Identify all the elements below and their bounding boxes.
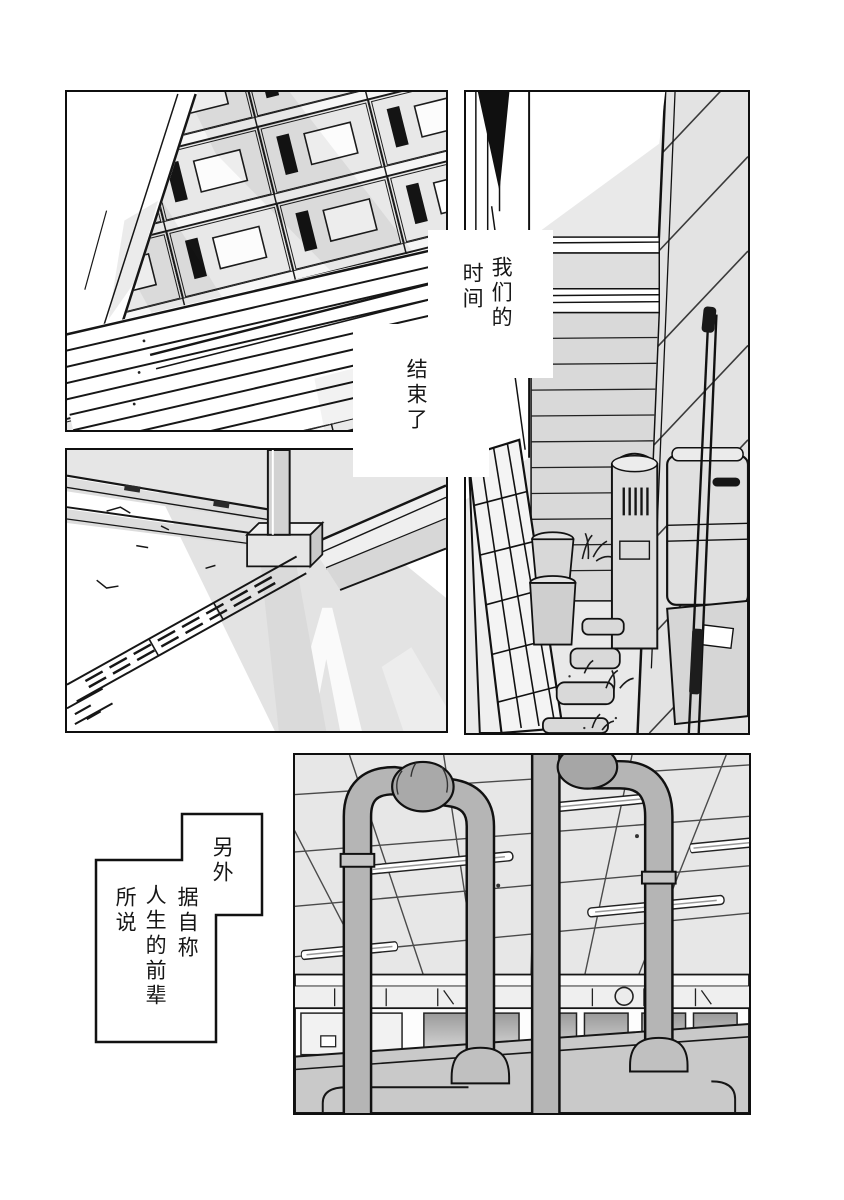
panel-entrance-floor	[65, 448, 448, 733]
narration-text-according: 据自称	[175, 886, 199, 961]
narration-text-life-senior: 人生的前辈	[143, 884, 167, 1009]
narration-text-time: 时间	[460, 262, 484, 312]
narration-text-ended: 结束了	[404, 358, 428, 433]
narration-text-besides: 另外	[210, 836, 234, 886]
manga-page: 我们的 时间 结束了 另外 据自称 人生的前辈 所说	[0, 0, 844, 1200]
narration-text-our: 我们的	[489, 256, 513, 331]
narration-text-says: 所说	[113, 886, 137, 936]
panel-ceiling-pipes	[293, 753, 751, 1115]
alley-artwork	[466, 92, 748, 733]
ceiling-pipes-artwork	[295, 755, 749, 1113]
panel-alley	[464, 90, 750, 735]
entrance-floor-artwork	[67, 450, 446, 731]
